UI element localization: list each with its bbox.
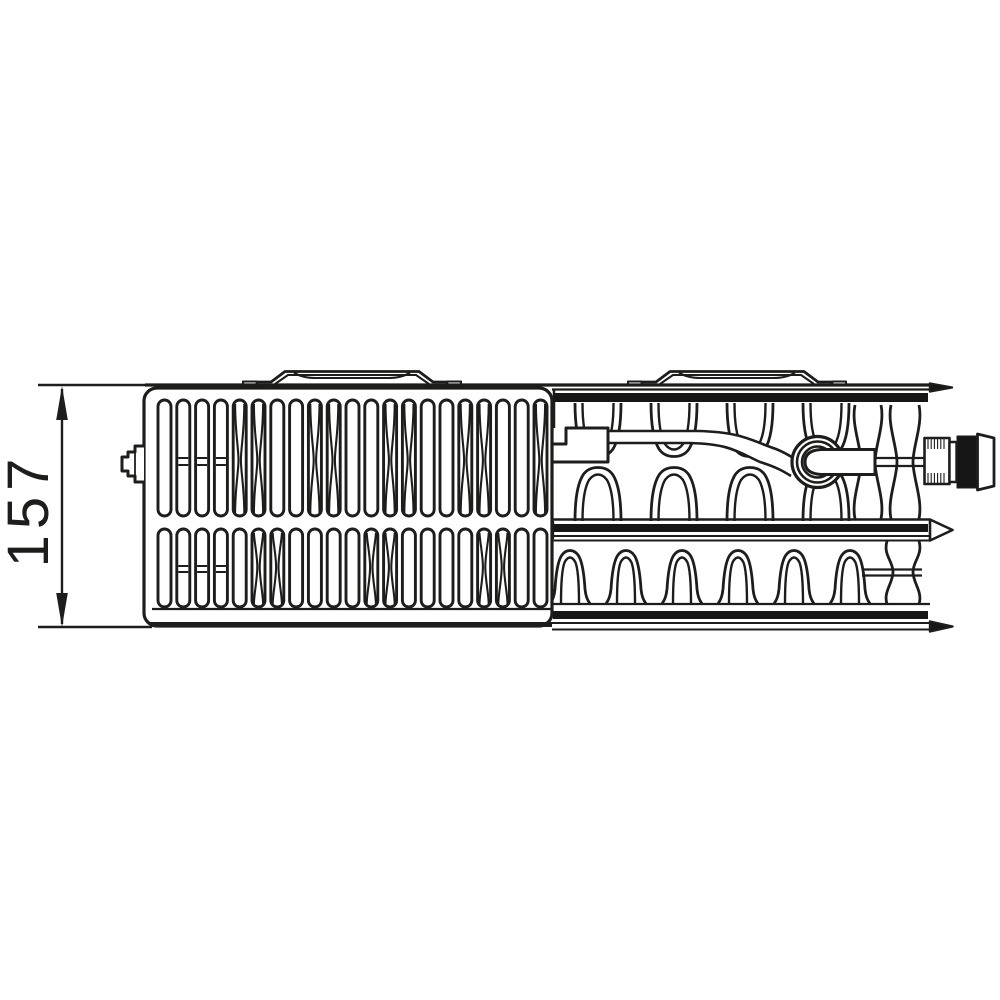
fin-lobe-inner [673, 558, 691, 604]
tab-inner [660, 375, 814, 384]
fin-lobe-inner [583, 475, 614, 522]
valve-spindle [805, 450, 875, 475]
fin-lobe-inner [729, 558, 747, 604]
water-channel-side [890, 405, 897, 519]
technical-drawing-page: 157 [0, 0, 1000, 1000]
side-plug [122, 446, 144, 482]
radiator-top-view [122, 372, 994, 632]
fin-lobe-inner [561, 558, 579, 604]
dimension-label: 157 [0, 453, 61, 568]
distributor-block [551, 428, 608, 462]
top-grille-panel [122, 388, 552, 626]
front-plate-band [553, 611, 928, 619]
fin-lobe-inner [735, 475, 766, 522]
middle-plate-band [553, 524, 928, 532]
front-plate-tip [930, 622, 953, 632]
fin-lobe-inner [659, 475, 690, 522]
rear-plate-band [553, 393, 928, 402]
fin-lobe-inner [785, 558, 803, 604]
fin-lobe-inner [617, 558, 635, 604]
radiator-technical-drawing: 157 [0, 0, 1000, 1000]
tab-inner [275, 375, 429, 384]
rear-plate-tip [930, 384, 952, 392]
water-channel-side [913, 541, 920, 604]
valve-end-cap [978, 434, 995, 490]
middle-plate-tip [930, 520, 953, 541]
water-channel-side [886, 541, 893, 604]
dimension-arrow-up [56, 386, 68, 420]
water-channel-side [913, 405, 920, 519]
dimension-annotation: 157 [0, 385, 152, 627]
fin-lobe-inner [841, 558, 859, 604]
mounting-tabs [243, 372, 846, 386]
valve-cap-ring-fill [957, 436, 977, 488]
water-pipe [551, 390, 798, 476]
dimension-arrow-down [56, 593, 68, 627]
stub-flange [950, 442, 957, 482]
